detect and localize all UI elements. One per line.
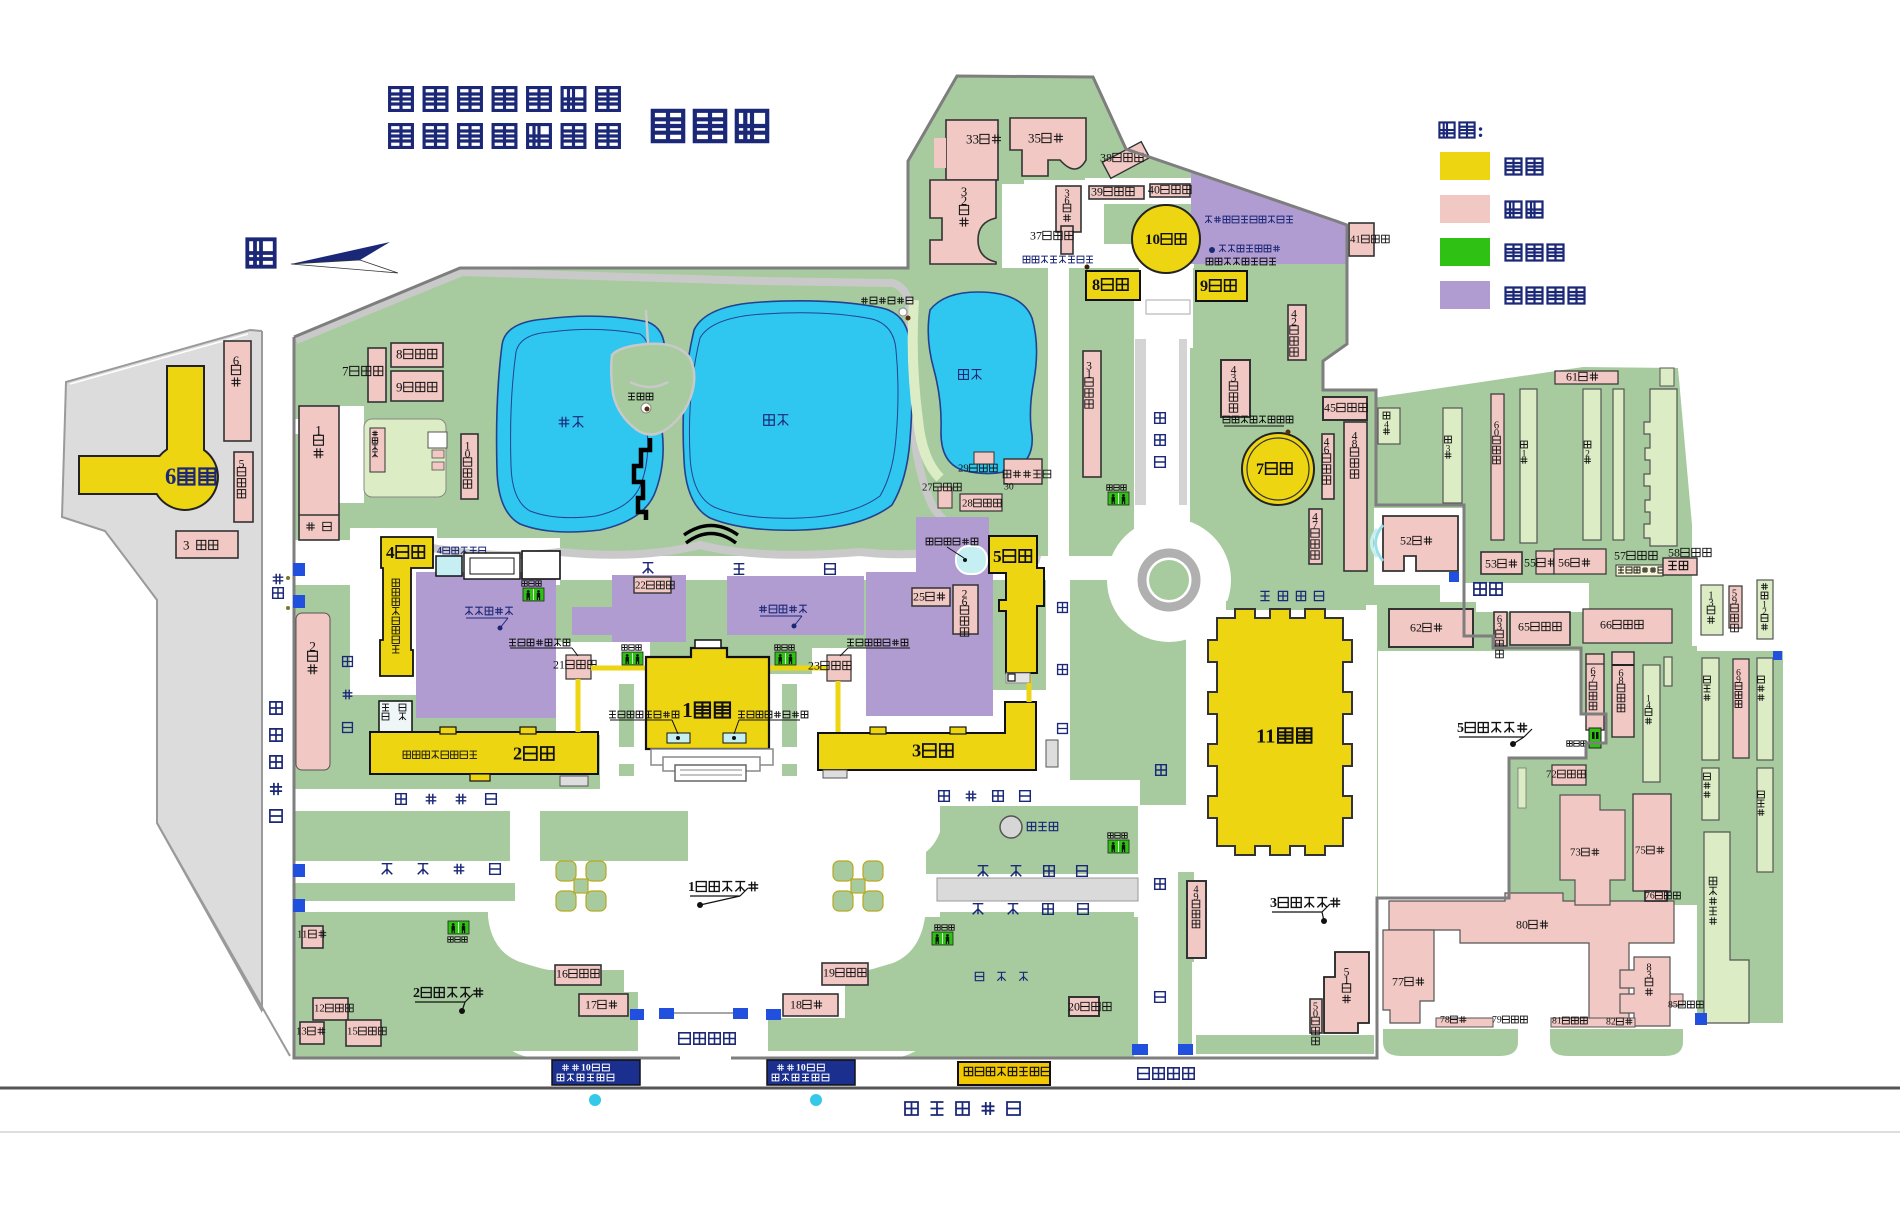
svg-text:81: 81 [1552,1016,1562,1027]
svg-text:2: 2 [1291,316,1297,329]
svg-text:1: 1 [1086,368,1092,381]
svg-text:85: 85 [1668,1000,1678,1011]
svg-text:3: 3 [183,537,190,552]
svg-text:45: 45 [1324,401,1336,415]
svg-text:41: 41 [1350,234,1361,246]
svg-text:7: 7 [1590,674,1595,685]
svg-text:17: 17 [585,998,597,1012]
svg-text:0: 0 [1313,1009,1318,1020]
svg-text:6: 6 [233,354,239,368]
svg-text:8: 8 [1352,438,1358,451]
svg-text:8: 8 [396,346,403,361]
svg-text:9: 9 [1736,675,1741,685]
svg-text:8: 8 [1618,676,1623,687]
svg-text:2: 2 [413,986,420,1001]
svg-text:58: 58 [1668,546,1680,560]
svg-text:4: 4 [437,546,442,557]
svg-text:10: 10 [581,1063,591,1074]
svg-text:3: 3 [1708,598,1713,609]
svg-text:77: 77 [1392,975,1404,989]
svg-text:16: 16 [556,967,568,981]
svg-text:5: 5 [239,457,245,470]
svg-text:40: 40 [1148,183,1160,197]
svg-text:61: 61 [1566,370,1578,384]
svg-text:6: 6 [165,464,176,489]
svg-text:7: 7 [1256,460,1264,478]
svg-text:1: 1 [315,423,322,438]
svg-text:25: 25 [913,590,925,604]
svg-text:7: 7 [342,363,349,378]
svg-text:6: 6 [962,596,968,609]
svg-text:2: 2 [961,194,967,208]
svg-text:56: 56 [1558,556,1570,570]
svg-text:22: 22 [635,580,646,592]
svg-text:62: 62 [1410,621,1422,635]
svg-text:9: 9 [396,379,403,394]
svg-text:10: 10 [796,1063,806,1074]
svg-text:9: 9 [1193,892,1198,903]
svg-text:3: 3 [1231,372,1237,385]
svg-text:9: 9 [1732,596,1737,607]
svg-text:2: 2 [513,744,522,764]
svg-text:21: 21 [553,658,565,672]
svg-text:3: 3 [1270,896,1277,911]
svg-text:72: 72 [1546,769,1557,781]
svg-text:52: 52 [1400,534,1412,548]
svg-text:0: 0 [465,448,471,461]
svg-text:19: 19 [823,966,835,980]
svg-text:55: 55 [1524,556,1536,570]
svg-text:38: 38 [1100,151,1112,165]
svg-text:8: 8 [1092,276,1100,294]
svg-text:80: 80 [1516,918,1528,932]
svg-text:37: 37 [1030,229,1042,243]
svg-text:5: 5 [1457,721,1464,736]
svg-text:18: 18 [790,998,802,1012]
svg-text:2: 2 [1762,607,1767,617]
svg-text:15: 15 [347,1026,358,1038]
svg-text:3: 3 [1646,970,1651,981]
svg-text:11: 11 [297,929,307,941]
svg-text:1: 1 [1344,974,1350,987]
svg-text:78: 78 [1440,1015,1450,1026]
svg-text:0: 0 [1494,428,1499,439]
svg-text:4: 4 [386,543,395,562]
svg-text:5: 5 [993,547,1002,566]
svg-text:13: 13 [296,1026,307,1038]
svg-text:1: 1 [688,880,695,895]
svg-text:29: 29 [958,463,969,475]
svg-text:7: 7 [1312,519,1318,532]
svg-text:82: 82 [1606,1017,1616,1028]
svg-text:4: 4 [1646,701,1651,711]
svg-text::: : [1477,118,1484,142]
svg-text:76: 76 [1645,891,1655,902]
svg-text:33: 33 [966,131,979,146]
svg-text:23: 23 [808,659,820,673]
svg-text:27: 27 [922,482,933,494]
svg-text:79: 79 [1492,1015,1502,1026]
svg-text:6: 6 [1064,196,1069,207]
svg-text:39: 39 [1091,185,1103,199]
svg-text:65: 65 [1518,620,1530,634]
svg-text:11: 11 [1256,725,1275,747]
svg-text:3: 3 [1497,622,1502,633]
svg-text:35: 35 [1028,130,1041,145]
svg-text:28: 28 [962,498,973,510]
svg-text:57: 57 [1614,549,1626,563]
svg-text:6: 6 [1324,444,1330,457]
svg-text:10: 10 [1145,232,1160,248]
svg-text:66: 66 [1600,618,1612,632]
svg-text:12: 12 [314,1003,325,1015]
svg-text:9: 9 [1200,277,1208,295]
svg-text:3: 3 [912,741,921,761]
svg-text:73: 73 [1570,847,1581,859]
svg-text:53: 53 [1485,557,1497,571]
svg-text:1: 1 [682,698,693,722]
svg-text:30: 30 [1004,482,1014,493]
svg-text:75: 75 [1635,845,1646,857]
svg-text:20: 20 [1068,1000,1080,1014]
